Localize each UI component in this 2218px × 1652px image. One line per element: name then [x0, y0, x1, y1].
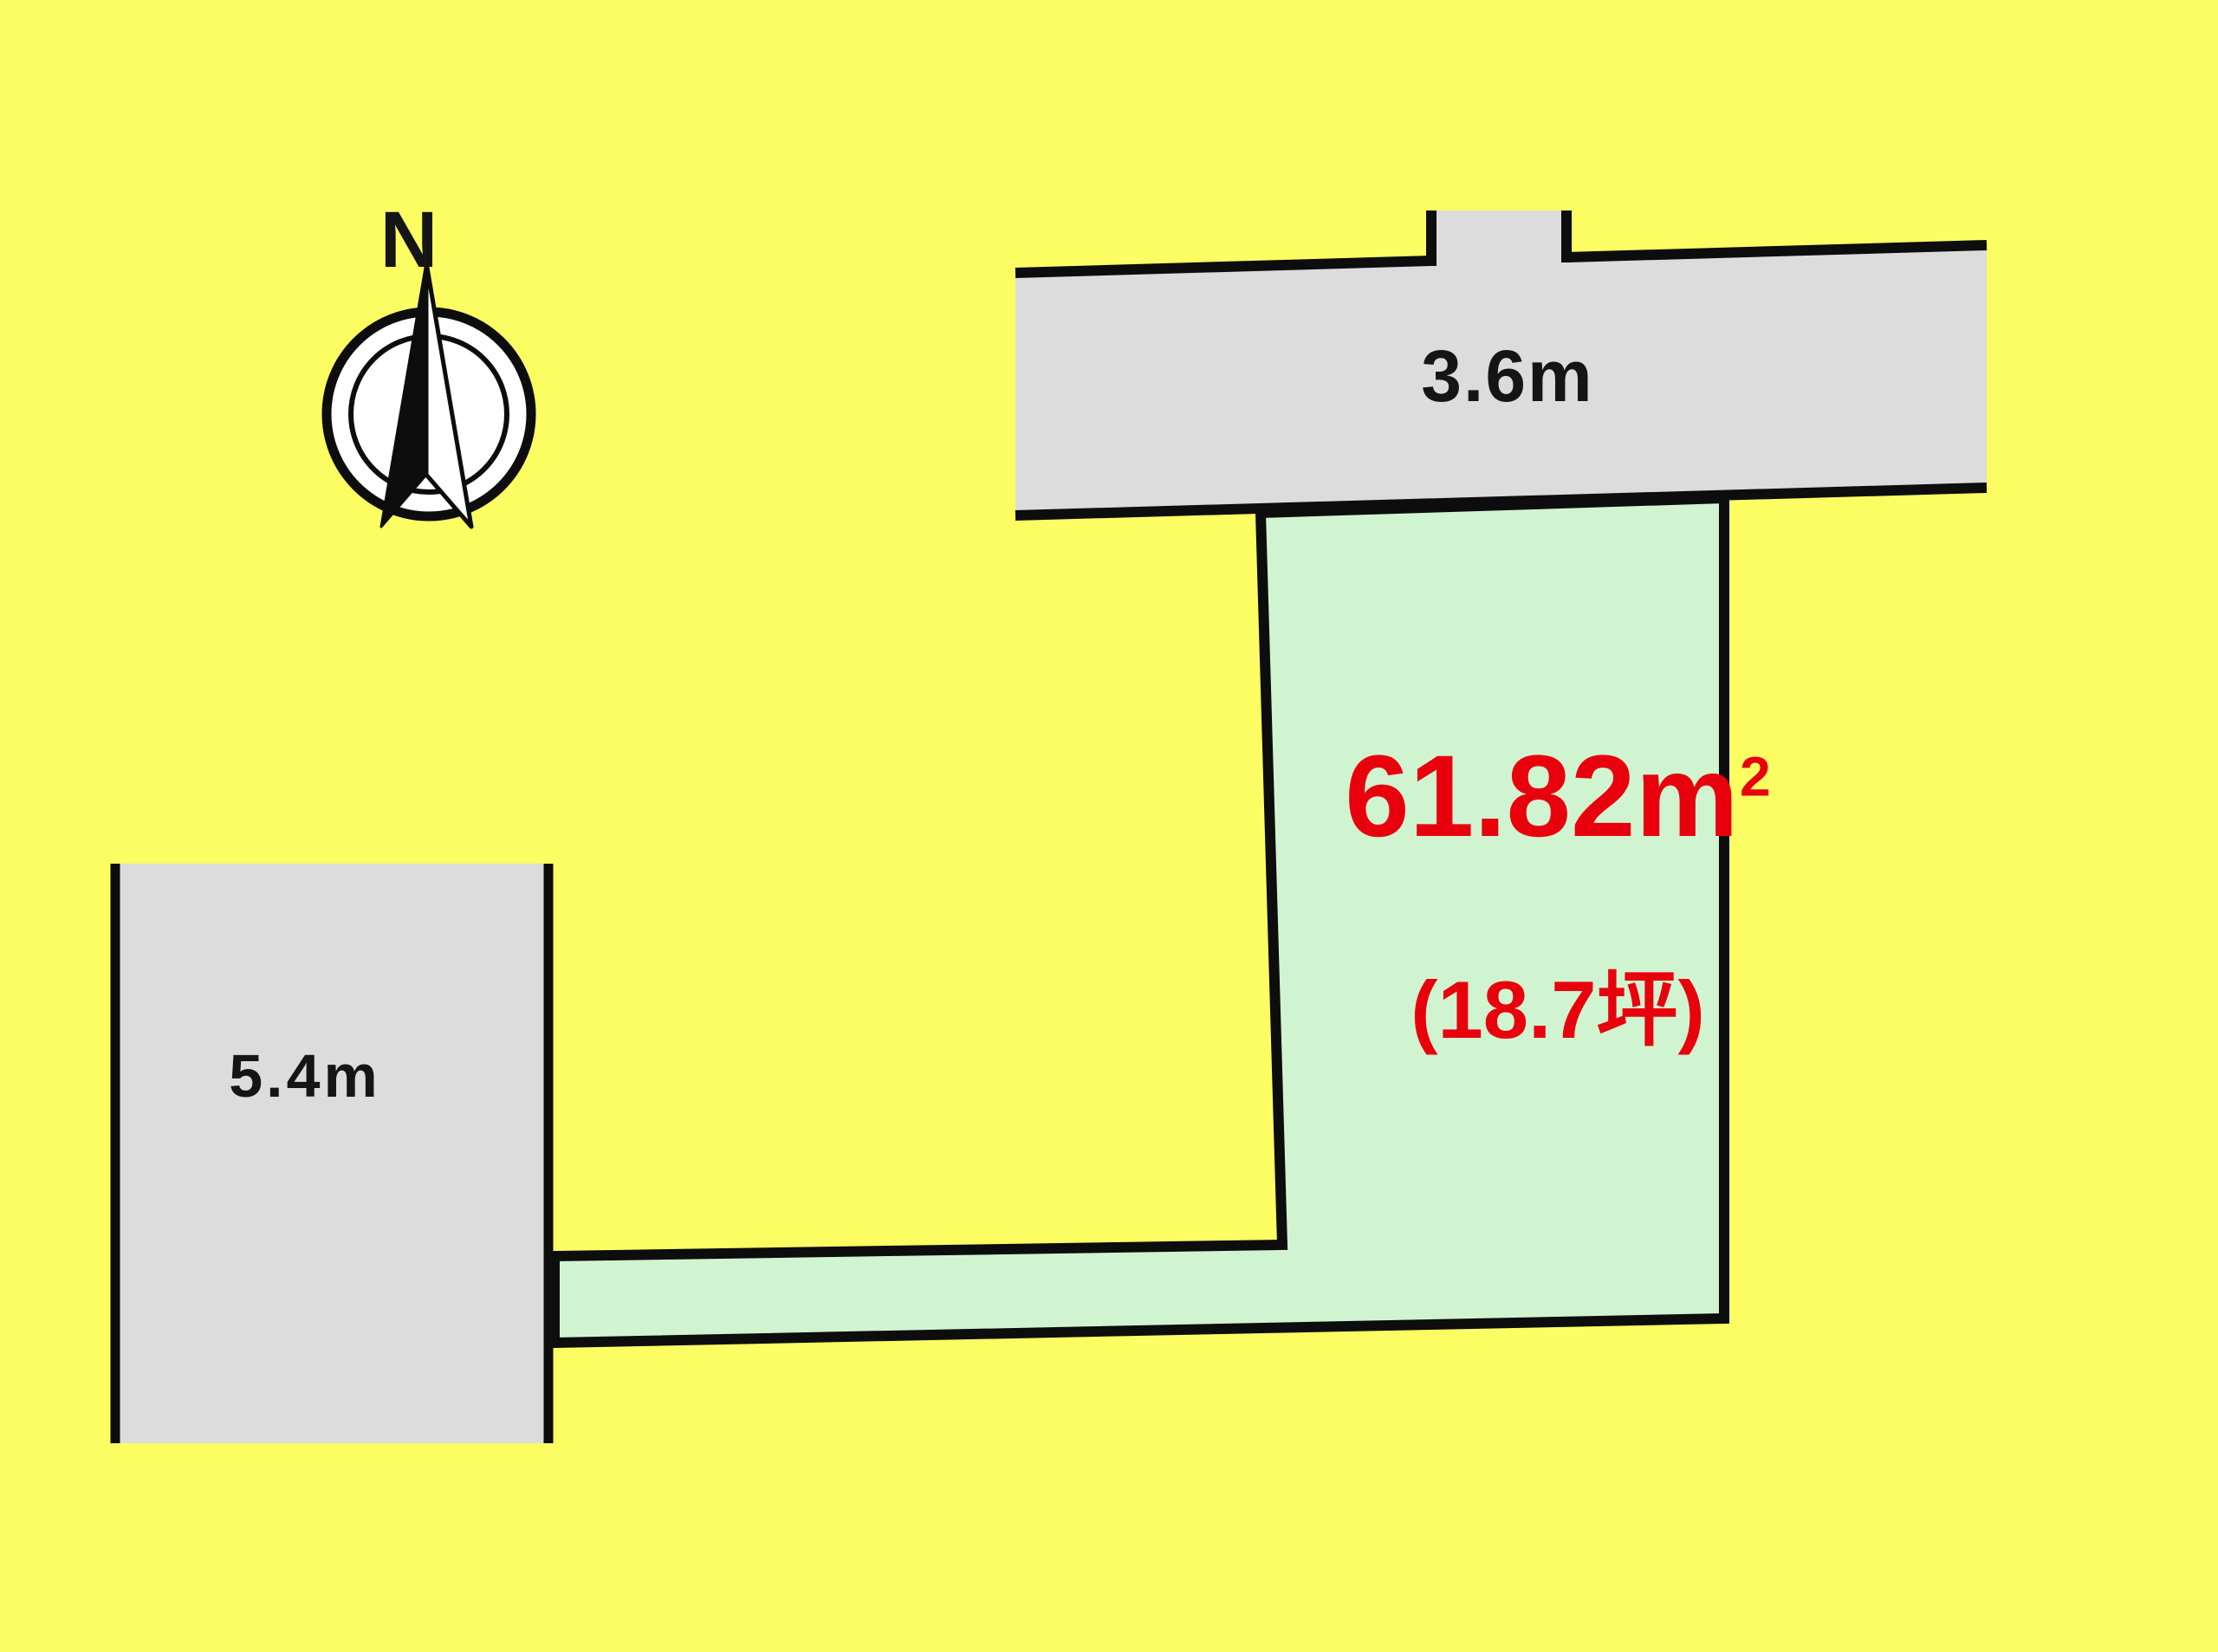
plot-polygon — [554, 498, 1724, 1343]
diagram-shapes — [0, 0, 2218, 1652]
compass-north-label: N — [380, 200, 438, 280]
left-road-surface — [120, 864, 544, 1443]
compass-icon — [327, 262, 531, 527]
plot-area-label: 61.82m2 — [1345, 739, 1771, 855]
plot-area-tsubo-label: (18.7坪) — [1411, 969, 1705, 1051]
left-road-width-label: 5.4m — [229, 1046, 381, 1106]
plot-area-value: 61.82m — [1345, 732, 1738, 861]
plot-diagram-canvas: N 3.6m 5.4m 61.82m2 (18.7坪) — [0, 0, 2218, 1652]
top-road-width-label: 3.6m — [1421, 340, 1593, 412]
top-road-notch — [1431, 211, 1566, 264]
plot-area-superscript: 2 — [1740, 749, 1771, 805]
